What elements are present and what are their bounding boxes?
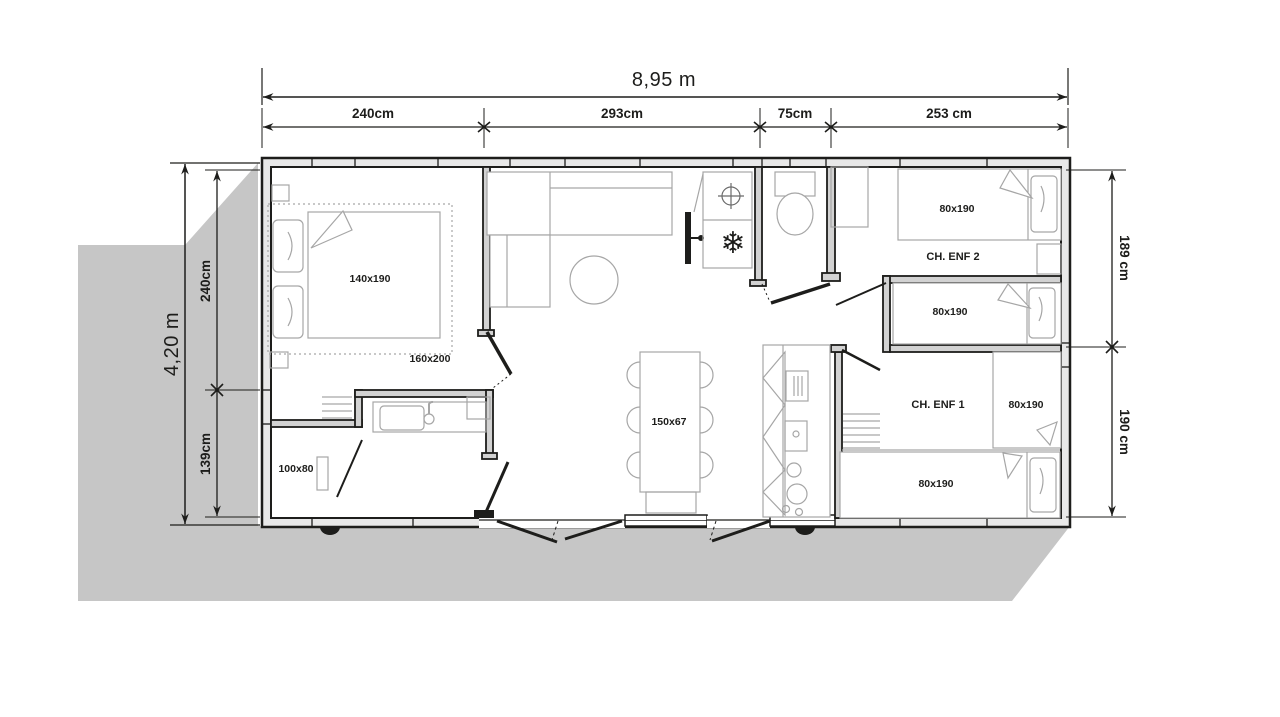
dining-area [627, 352, 713, 513]
dimension-right-segments: 189 cm 190 cm [1066, 170, 1132, 517]
tv-icon [685, 212, 691, 264]
wall-wc-left [755, 167, 762, 282]
kitchen [763, 345, 830, 517]
overall-height-label: 4,20 m [161, 312, 183, 376]
sofa-chaise [490, 235, 550, 307]
dim-segment-label: 240cm [352, 106, 394, 121]
dimension-top-segments: 240cm 293cm 75cm 253 cm [262, 106, 1068, 148]
door-jamb [474, 510, 494, 518]
sofa [487, 172, 672, 235]
floor-plan-drawing: ❄ [0, 0, 1280, 717]
child2-bed-label: 80x190 [932, 306, 967, 318]
dim-segment-label: 240cm [198, 260, 213, 302]
pillow [273, 220, 303, 272]
master-bed-label: 140x190 [350, 273, 391, 285]
pillow [273, 286, 303, 338]
wall-master-bath [271, 420, 362, 427]
dim-segment-label: 139cm [198, 433, 213, 475]
child2-room-name: CH. ENF 2 [926, 251, 979, 263]
dim-segment-label: 293cm [601, 106, 643, 121]
dining-table-label: 150x67 [651, 416, 686, 428]
dimension-top-overall: 8,95 m [262, 68, 1068, 105]
child1-bed-label: 80x190 [918, 478, 953, 490]
toilet-bowl [777, 193, 813, 235]
shower-label: 100x80 [278, 463, 313, 475]
wall-child2-niche-top [883, 276, 1061, 283]
wall-main-divider [890, 345, 1061, 352]
dim-segment-label: 253 cm [926, 106, 972, 121]
wc [775, 172, 815, 235]
dim-segment-label: 190 cm [1117, 409, 1132, 455]
wall-child2-niche-left [883, 276, 890, 352]
freezer-icon: ❄ [720, 227, 745, 260]
floor-plan-canvas: ❄ [0, 0, 1280, 717]
child2-bed-label: 80x190 [939, 203, 974, 215]
dim-segment-label: 75cm [778, 106, 813, 121]
overall-width-label: 8,95 m [632, 69, 696, 91]
optional-bed-label: 160x200 [410, 353, 451, 365]
child1-bed-label: 80x190 [1008, 399, 1043, 411]
child1-room-name: CH. ENF 1 [911, 399, 964, 411]
dim-segment-label: 189 cm [1117, 235, 1132, 281]
